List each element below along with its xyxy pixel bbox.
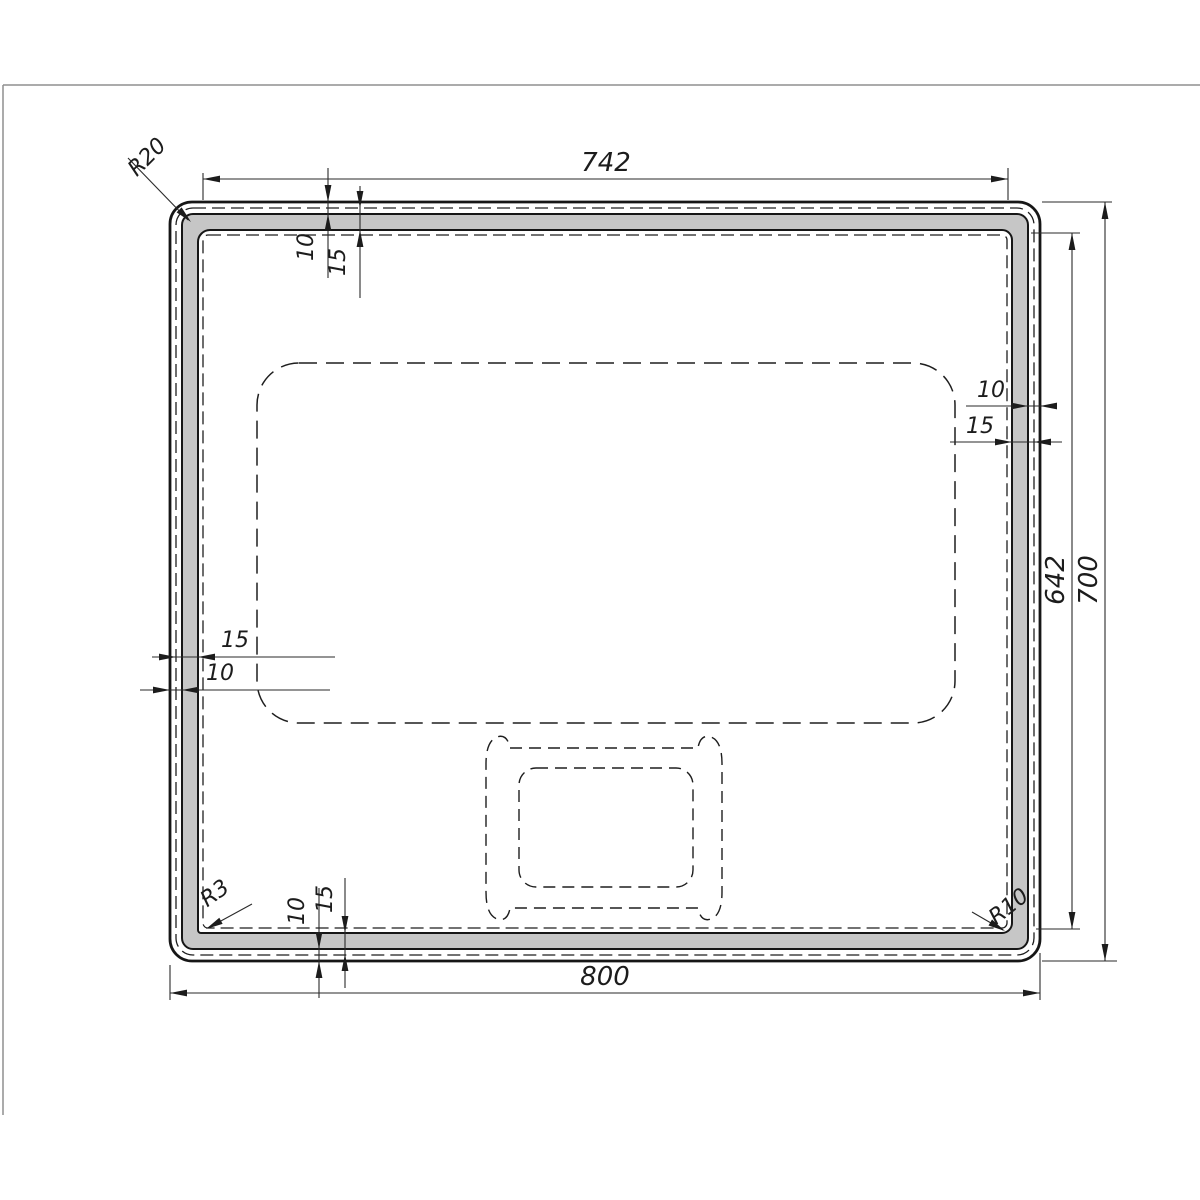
dim-right-band: 15 [966, 414, 994, 439]
radius-callouts: R20 R3 R10 [123, 133, 1033, 931]
dim-right-offset: 10 [977, 378, 1005, 403]
dimension-arrows [153, 176, 1108, 997]
mirror-outer-contour [170, 202, 1040, 961]
sensor-inner-dashed [519, 768, 693, 887]
technical-drawing: 742 800 700 642 10 15 10 15 15 10 10 15 … [0, 0, 1200, 1200]
dim-width-bottom: 800 [580, 962, 630, 992]
band-inner-edge [198, 230, 1012, 933]
sensor-outer-dashed [486, 736, 722, 919]
dim-top-offset: 10 [294, 233, 319, 261]
dimension-labels: 742 800 700 642 10 15 10 15 15 10 10 15 [206, 148, 1104, 992]
band-outer-edge [182, 214, 1028, 949]
sensor-zone [486, 736, 722, 919]
glass-edge-dashed [176, 208, 1034, 955]
led-band [182, 214, 1028, 949]
sandblast-inner-dashed [203, 235, 1007, 928]
dim-width-top: 742 [581, 148, 631, 178]
dim-top-band: 15 [326, 248, 351, 276]
dimension-lines [140, 168, 1117, 1000]
radius-bottom-left-label: R3 [196, 875, 234, 912]
dim-bottom-band: 15 [313, 885, 338, 913]
dim-height-inner: 642 [1041, 555, 1071, 605]
illumination-zone-dashed [257, 363, 955, 723]
drawing-page: 742 800 700 642 10 15 10 15 15 10 10 15 … [0, 0, 1200, 1200]
dim-left-offset: 10 [206, 661, 234, 686]
radius-top-left-label: R20 [123, 133, 171, 181]
dim-height-outer: 700 [1074, 555, 1104, 605]
dim-left-band: 15 [221, 628, 249, 653]
dim-bottom-offset: 10 [285, 897, 310, 925]
